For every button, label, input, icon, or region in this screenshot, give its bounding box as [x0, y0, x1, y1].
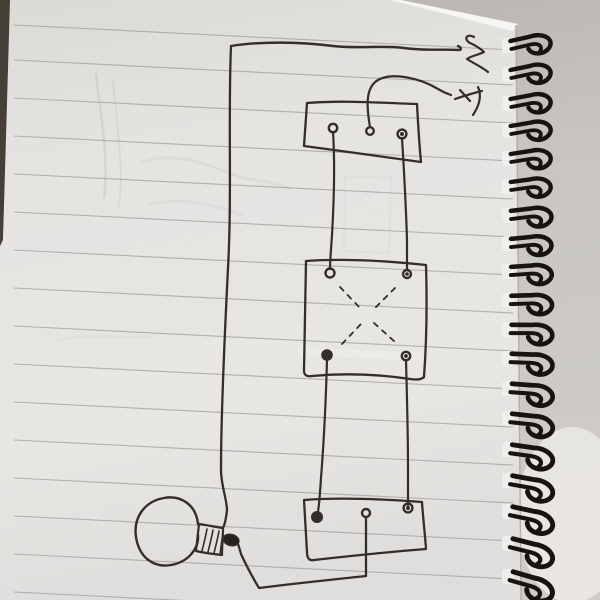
bottom-box-terminal-right-dot: [406, 506, 410, 510]
whiteout-smudge: [301, 352, 418, 356]
four-way-terminal-bottom-right-dot: [404, 354, 408, 358]
scene-svg: [0, 0, 600, 600]
notebook-photo: [0, 0, 600, 600]
four-way-terminal-top-right-dot: [405, 272, 409, 276]
bottom-box-terminal-left: [312, 512, 322, 522]
top-box-terminal-right-dot: [400, 132, 404, 136]
four-way-terminal-bottom-left: [322, 350, 332, 360]
